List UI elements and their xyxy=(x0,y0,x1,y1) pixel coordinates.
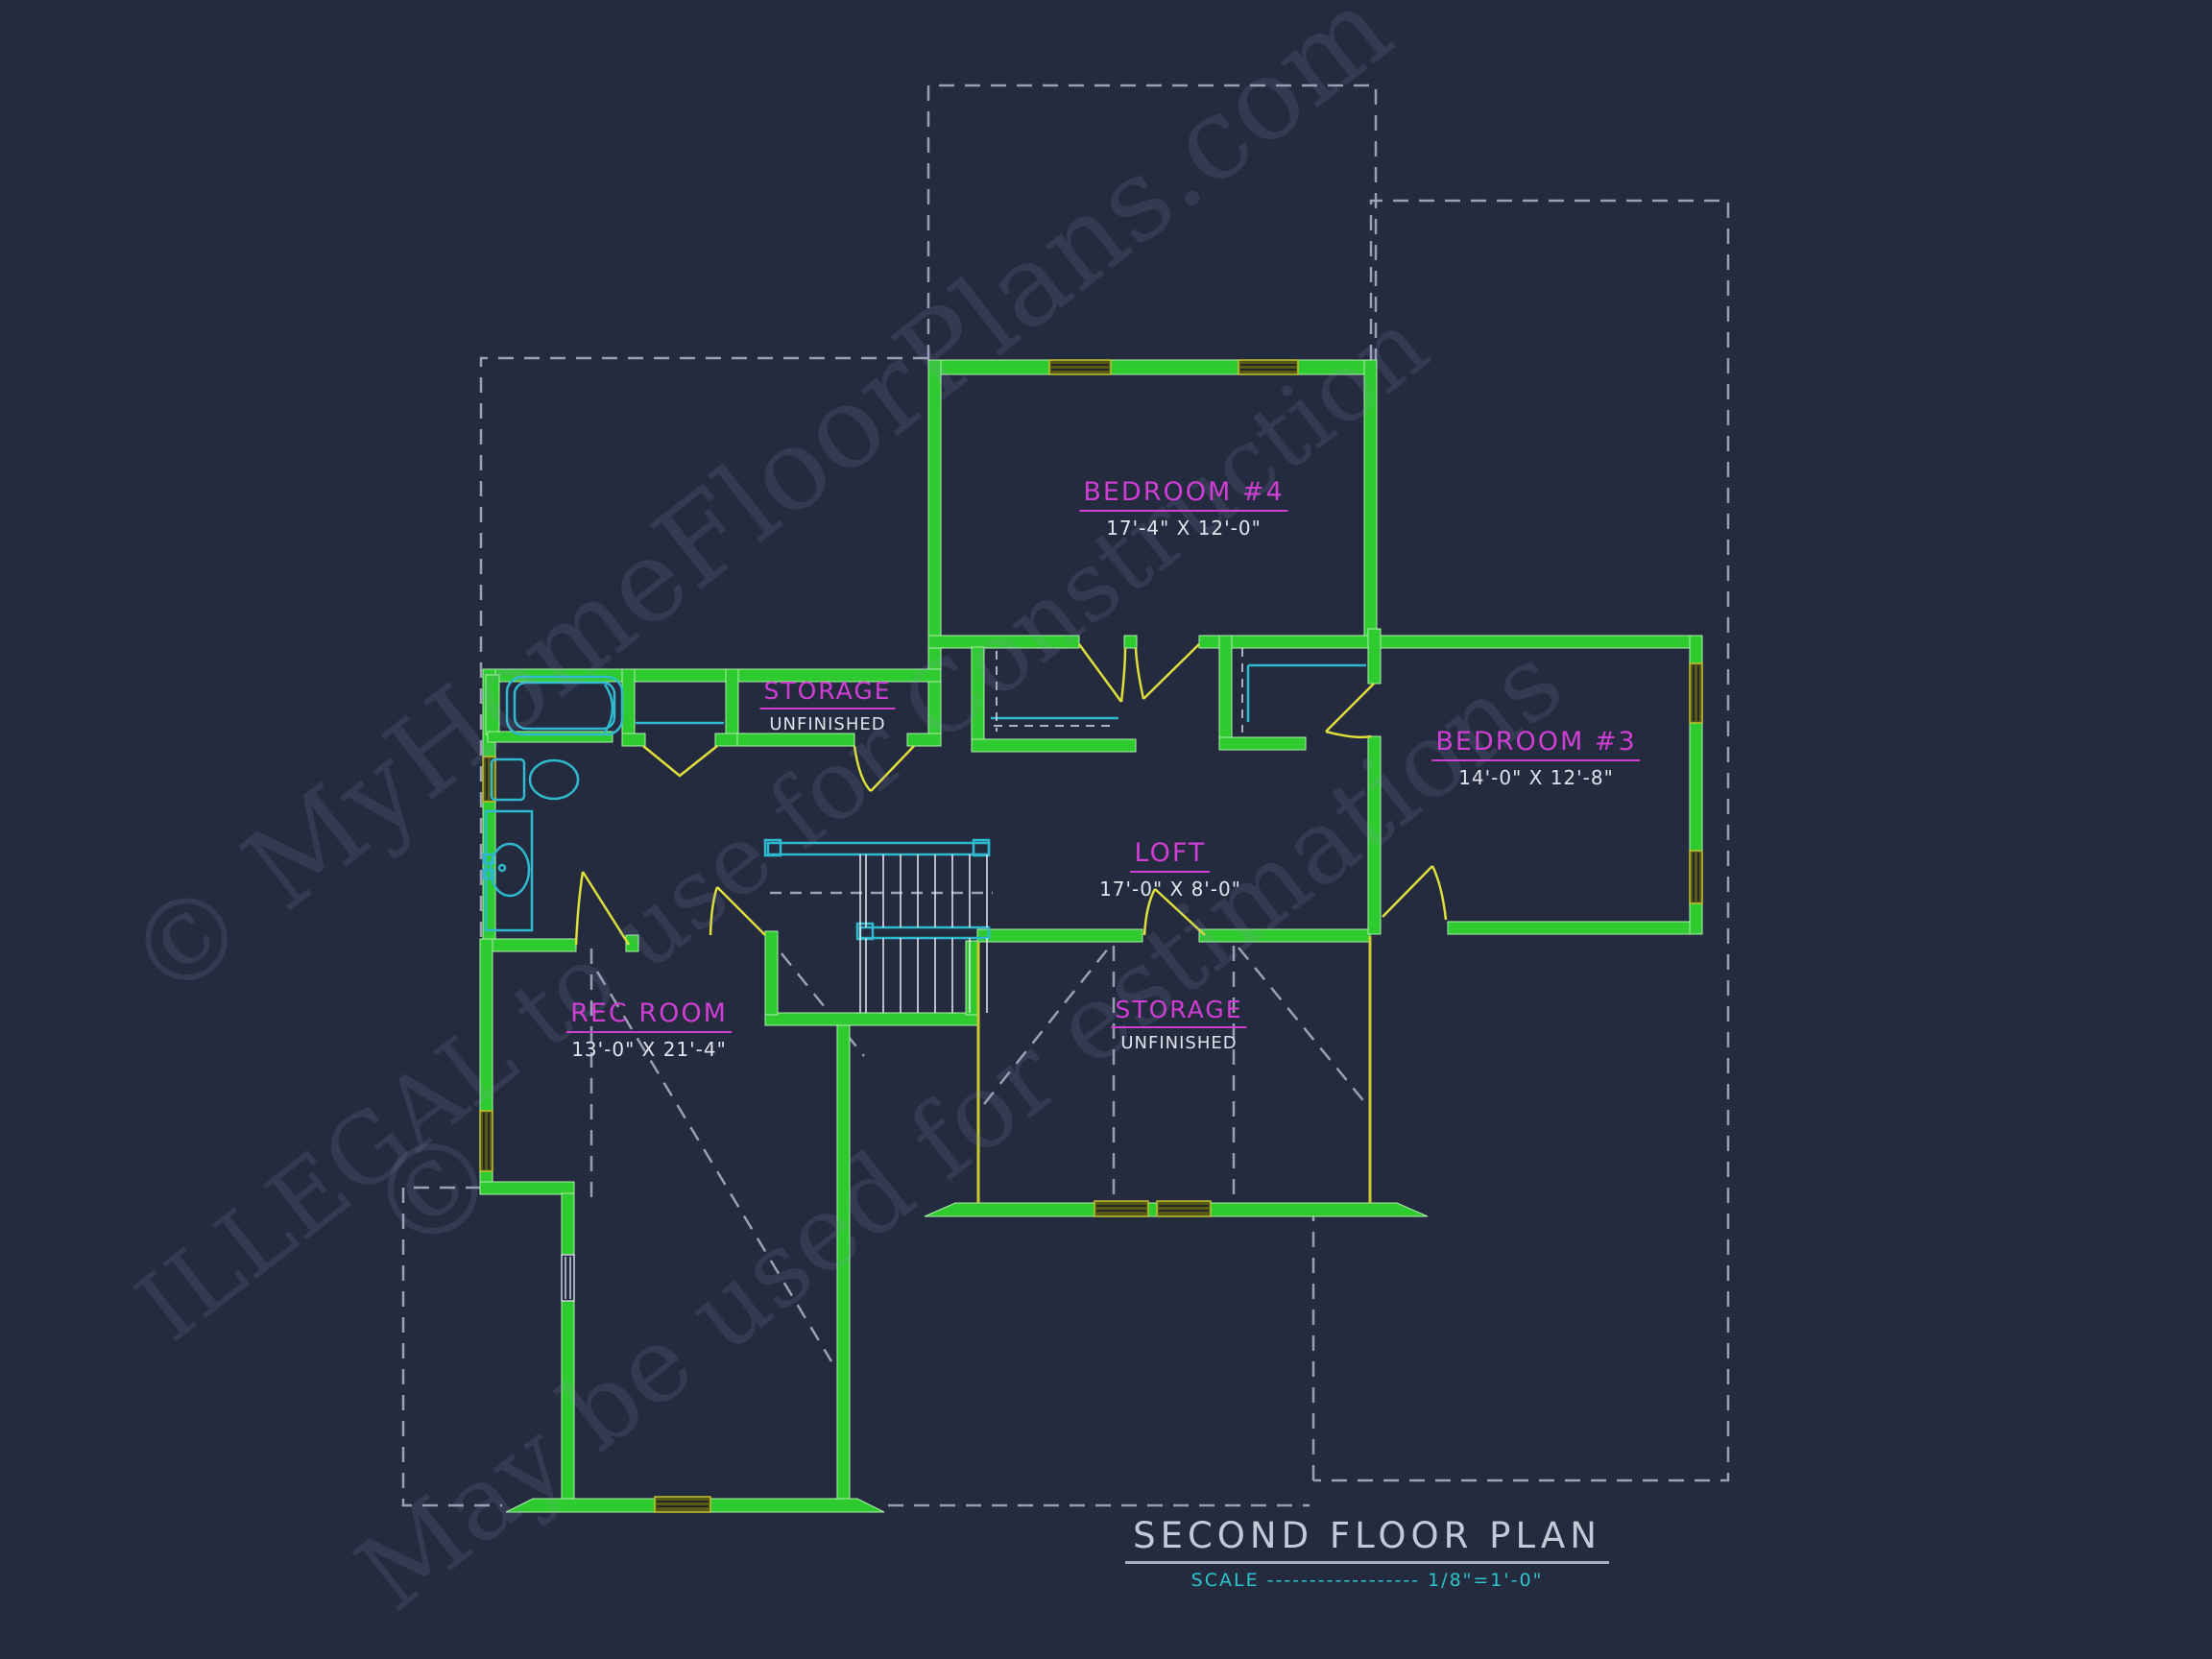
room-dims: 14'-0" X 12'-8" xyxy=(1431,766,1640,789)
storage-stud-walls xyxy=(978,936,1370,1203)
room-dims: 17'-4" X 12'-0" xyxy=(1079,517,1287,540)
title-block: SECOND FLOOR PLAN SCALE ----------------… xyxy=(1125,1515,1609,1591)
closet-rods xyxy=(994,648,1242,733)
room-dims: 13'-0" X 21'-4" xyxy=(566,1038,732,1061)
room-label-rec-room: REC ROOM 13'-0" X 21'-4" xyxy=(566,998,732,1061)
doors xyxy=(576,644,1446,945)
bathtub xyxy=(507,677,622,734)
room-name: BEDROOM #3 xyxy=(1431,727,1640,761)
room-label-bedroom4: BEDROOM #4 17'-4" X 12'-0" xyxy=(1079,477,1287,540)
room-label-storage-top: STORAGE UNFINISHED xyxy=(759,677,895,734)
room-name: BEDROOM #4 xyxy=(1079,477,1287,512)
room-label-loft: LOFT 17'-0" X 8'-0" xyxy=(1099,838,1241,901)
room-status: UNFINISHED xyxy=(759,714,895,734)
room-name: STORAGE xyxy=(759,677,895,709)
room-label-bedroom3: BEDROOM #3 14'-0" X 12'-8" xyxy=(1431,727,1640,789)
roof-outline-dashed xyxy=(403,85,1728,1505)
plan-scale: SCALE ------------------ 1/8"=1'-0" xyxy=(1125,1570,1609,1591)
room-name: STORAGE xyxy=(1111,996,1246,1028)
floor-plan-canvas: © MyHomeFloorPlans.com ILLEGAL to use fo… xyxy=(0,0,2212,1659)
plan-title: SECOND FLOOR PLAN xyxy=(1125,1515,1609,1564)
stair-railing xyxy=(765,840,989,939)
room-label-storage-bottom: STORAGE UNFINISHED xyxy=(1111,996,1246,1053)
window-light xyxy=(562,1255,574,1301)
room-dims: 17'-0" X 8'-0" xyxy=(1099,878,1241,901)
room-status: UNFINISHED xyxy=(1111,1033,1246,1053)
room-name: REC ROOM xyxy=(566,998,732,1033)
toilet xyxy=(492,759,578,800)
room-name: LOFT xyxy=(1131,838,1211,873)
plan-drawing xyxy=(0,0,2212,1659)
